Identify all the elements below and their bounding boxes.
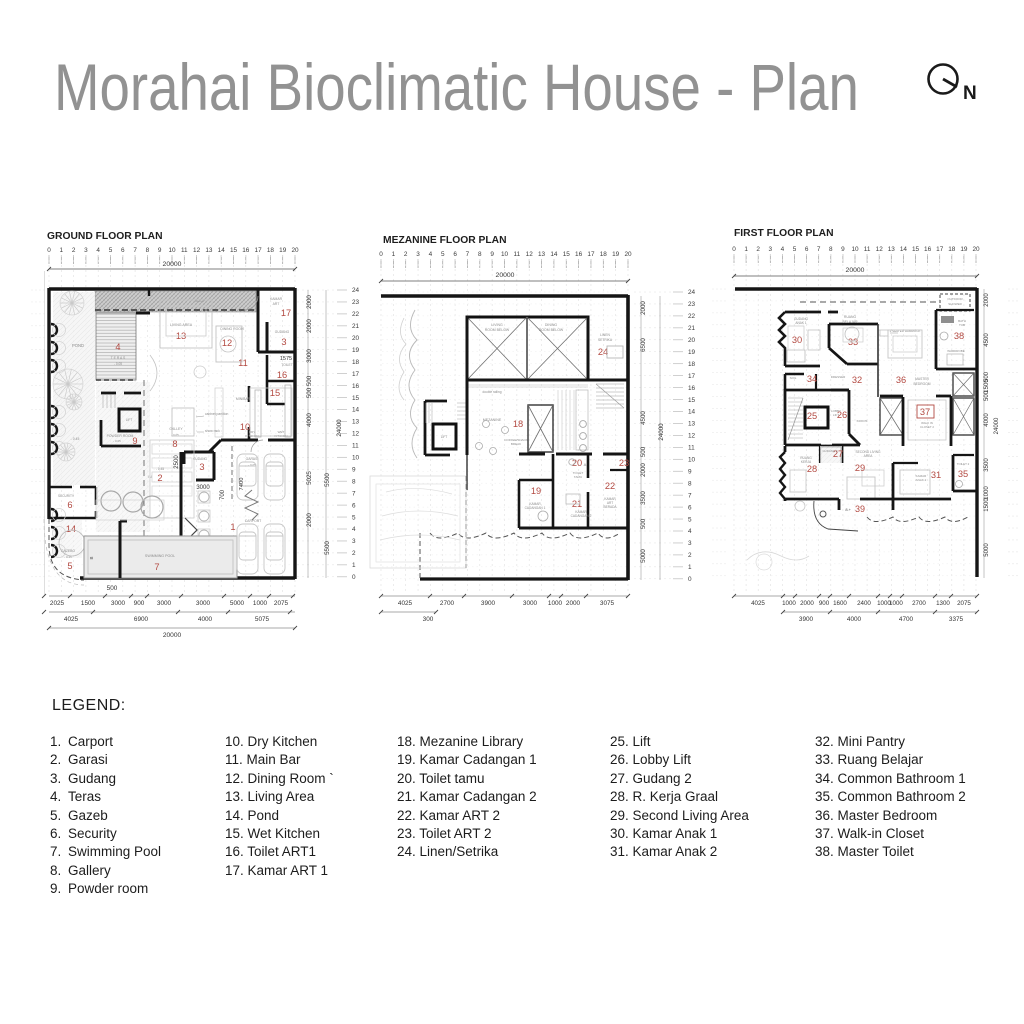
svg-text:1000: 1000 [889,600,903,607]
svg-text:2700: 2700 [912,600,926,607]
svg-text:24000: 24000 [994,417,1000,434]
svg-text:SWIMMING POOL: SWIMMING POOL [145,554,175,558]
svg-text:19: 19 [279,247,287,254]
svg-text:OUTDOOR: OUTDOOR [947,297,963,301]
svg-text:2400: 2400 [857,600,871,607]
svg-text:1500: 1500 [81,600,96,607]
svg-text:10: 10 [352,455,360,462]
svg-text:13: 13 [205,247,213,254]
svg-text:24000: 24000 [336,419,343,437]
svg-text:0: 0 [47,247,51,254]
svg-text:12: 12 [222,338,232,348]
svg-text:10: 10 [168,247,176,254]
svg-text:3075: 3075 [600,600,615,607]
svg-text:3: 3 [688,540,692,547]
svg-text:LIVING: LIVING [491,323,503,327]
svg-text:4000: 4000 [984,413,990,427]
svg-text:9: 9 [490,251,494,258]
svg-text:700: 700 [220,489,226,500]
svg-text:13: 13 [888,246,896,253]
svg-text:GUDANG 2: GUDANG 2 [822,449,837,453]
svg-text:34: 34 [807,374,817,384]
svg-text:POWDER ROOM: POWDER ROOM [107,434,134,438]
svg-text:BELAJAR: BELAJAR [842,320,858,324]
svg-text:- 0.45: - 0.45 [71,437,80,441]
svg-text:TUB: TUB [959,323,965,327]
svg-text:12: 12 [688,433,696,440]
svg-text:12: 12 [876,246,884,253]
svg-text:3900: 3900 [799,616,814,623]
svg-text:7: 7 [817,246,821,253]
svg-text:30: 30 [792,335,802,345]
svg-text:1: 1 [230,522,235,532]
svg-text:37: 37 [920,407,930,417]
svg-text:10: 10 [501,251,509,258]
svg-text:21: 21 [688,325,696,332]
svg-text:10: 10 [688,457,696,464]
svg-text:3000: 3000 [523,600,538,607]
svg-text:14: 14 [688,409,696,416]
svg-text:GUDANG: GUDANG [193,457,208,461]
svg-text:6900: 6900 [134,616,149,623]
svg-text:2700: 2700 [440,600,455,607]
svg-text:GALLEY: GALLEY [169,427,183,431]
svg-text:20000: 20000 [496,272,515,279]
svg-text:22: 22 [688,313,696,320]
svg-text:3: 3 [769,246,773,253]
svg-text:23: 23 [619,458,629,468]
svg-text:4: 4 [688,528,692,535]
svg-text:16: 16 [924,246,932,253]
svg-text:1500: 1500 [984,379,990,393]
svg-text:11: 11 [181,247,188,254]
svg-text:20000: 20000 [163,261,182,268]
svg-text:13: 13 [538,251,546,258]
svg-text:10: 10 [240,422,250,432]
svg-text:3: 3 [281,337,286,347]
svg-text:MEZANINE: MEZANINE [483,418,502,422]
svg-text:1500: 1500 [984,498,990,512]
svg-text:SECURITY: SECURITY [58,494,75,498]
svg-text:18: 18 [513,419,523,429]
svg-text:2: 2 [157,473,162,483]
svg-text:28: 28 [807,464,817,474]
svg-text:39: 39 [855,504,865,514]
svg-text:4025: 4025 [398,600,413,607]
svg-text:KAMAR: KAMAR [270,297,283,301]
svg-text:4500: 4500 [984,333,990,347]
svg-text:11: 11 [688,445,695,452]
svg-text:POND: POND [72,343,84,348]
svg-text:- 0.45: - 0.45 [156,467,164,471]
svg-text:2000: 2000 [984,293,990,307]
svg-text:4: 4 [781,246,785,253]
svg-text:4000: 4000 [306,413,313,427]
svg-text:DINING: DINING [545,323,558,327]
svg-text:12: 12 [193,247,201,254]
svg-text:15: 15 [912,246,920,253]
svg-text:8: 8 [146,247,150,254]
svg-text:15: 15 [563,251,571,258]
svg-text:22: 22 [352,311,360,318]
svg-text:15: 15 [230,247,238,254]
svg-text:TOILET: TOILET [281,363,292,367]
svg-text:17: 17 [688,373,696,380]
svg-text:GUDANG: GUDANG [275,330,290,334]
svg-text:BEDROOM: BEDROOM [913,382,930,386]
svg-text:2075: 2075 [274,600,289,607]
svg-text:8: 8 [688,480,692,487]
svg-text:20000: 20000 [846,267,865,274]
svg-text:2: 2 [756,246,760,253]
svg-text:5: 5 [352,514,356,521]
svg-text:3500: 3500 [640,491,647,505]
svg-text:1000: 1000 [782,600,796,607]
svg-text:SHOWER: SHOWER [948,302,962,306]
svg-text:KROOS: KROOS [857,419,868,423]
svg-text:1: 1 [688,564,692,571]
svg-text:7: 7 [133,247,137,254]
svg-text:1: 1 [352,562,356,569]
svg-text:2: 2 [72,247,76,254]
svg-text:GARASI: GARASI [246,457,259,461]
svg-text:4: 4 [115,342,120,352]
svg-text:CADANGAN 2: CADANGAN 2 [571,514,592,518]
svg-text:2000: 2000 [640,463,647,477]
svg-text:17: 17 [587,251,595,258]
svg-text:24: 24 [688,289,696,296]
svg-text:9: 9 [132,436,137,446]
svg-text:300: 300 [423,616,434,623]
svg-text:show rack: show rack [205,429,220,433]
svg-text:6: 6 [805,246,809,253]
svg-text:0: 0 [379,251,383,258]
svg-text:500: 500 [640,446,647,457]
svg-text:20: 20 [352,335,360,342]
svg-text:3: 3 [199,462,204,472]
svg-text:26: 26 [837,410,847,420]
svg-text:900: 900 [134,600,145,607]
svg-text:13: 13 [352,419,360,426]
svg-text:16: 16 [242,247,250,254]
svg-text:19: 19 [612,251,620,258]
svg-text:CLOSET 2: CLOSET 2 [920,425,934,429]
svg-text:0: 0 [688,576,692,583]
svg-text:4700: 4700 [899,616,914,623]
svg-text:2000: 2000 [640,301,647,315]
svg-text:B: B [89,556,94,559]
svg-text:9: 9 [158,247,162,254]
svg-text:8: 8 [478,251,482,258]
svg-text:3: 3 [416,251,420,258]
svg-text:14: 14 [352,407,360,414]
svg-text:MEZANINE FLOOR PLAN: MEZANINE FLOOR PLAN [383,235,507,246]
svg-text:9: 9 [352,466,356,473]
svg-text:DINING ROOM: DINING ROOM [220,327,244,331]
svg-text:ANAK 2: ANAK 2 [916,478,927,482]
svg-text:2000: 2000 [800,600,814,607]
svg-text:36: 36 [896,375,906,385]
svg-text:17: 17 [255,247,263,254]
svg-text:0: 0 [352,574,356,581]
svg-text:TOILET 2: TOILET 2 [957,462,970,466]
svg-text:FIRST FLOOR PLAN: FIRST FLOOR PLAN [734,228,834,239]
svg-text:5000: 5000 [640,549,647,563]
svg-text:3500: 3500 [984,458,990,472]
svg-text:11: 11 [514,251,521,258]
svg-text:500: 500 [306,375,313,386]
svg-text:DRESSER: DRESSER [831,375,846,379]
svg-text:16: 16 [575,251,583,258]
svg-text:3000: 3000 [306,349,313,363]
svg-text:4000: 4000 [198,616,213,623]
svg-text:ART: ART [273,302,280,306]
svg-text:2075: 2075 [957,600,971,607]
svg-text:2000: 2000 [306,295,313,309]
svg-text:900: 900 [819,600,830,607]
svg-text:2025: 2025 [50,600,65,607]
svg-text:500: 500 [107,585,118,592]
svg-text:15: 15 [270,388,280,398]
svg-text:4000: 4000 [847,616,862,623]
svg-text:17: 17 [281,308,291,318]
svg-text:2000: 2000 [566,600,581,607]
svg-text:15: 15 [688,397,696,404]
svg-text:BERADA: BERADA [603,505,617,509]
svg-text:31: 31 [931,470,941,480]
svg-text:9: 9 [841,246,845,253]
svg-text:5: 5 [793,246,797,253]
svg-text:ANAK 1: ANAK 1 [795,321,807,325]
svg-text:18: 18 [267,247,275,254]
svg-text:1: 1 [744,246,748,253]
svg-text:500: 500 [984,390,990,401]
svg-text:5500: 5500 [324,541,331,555]
svg-text:19: 19 [352,347,360,354]
svg-text:15: 15 [352,395,360,402]
svg-text:1: 1 [392,251,396,258]
svg-text:BREAK: BREAK [511,442,521,446]
svg-text:5000: 5000 [230,600,245,607]
svg-text:35: 35 [958,469,968,479]
svg-text:TAMU: TAMU [574,475,582,479]
svg-text:8: 8 [172,439,177,449]
svg-text:3000: 3000 [196,485,210,491]
svg-text:23: 23 [352,299,360,306]
svg-text:3: 3 [84,247,88,254]
svg-text:14: 14 [550,251,558,258]
svg-text:MINIBAR: MINIBAR [236,397,251,401]
svg-text:1300: 1300 [936,600,950,607]
svg-text:10: 10 [851,246,859,253]
svg-text:3000: 3000 [196,600,211,607]
svg-text:20: 20 [624,251,632,258]
svg-text:4500: 4500 [640,411,647,425]
svg-text:18: 18 [600,251,608,258]
svg-text:AREA: AREA [864,454,874,458]
svg-text:18: 18 [688,361,696,368]
svg-text:5: 5 [688,516,692,523]
svg-text:RUANG: RUANG [844,315,857,319]
svg-text:LINEN: LINEN [600,333,610,337]
svg-text:17: 17 [936,246,944,253]
svg-text:3375: 3375 [949,616,964,623]
svg-text:6: 6 [121,247,125,254]
svg-text:22: 22 [605,481,615,491]
svg-text:24000: 24000 [658,423,665,441]
svg-text:11: 11 [238,358,248,368]
svg-text:5: 5 [109,247,113,254]
svg-text:14: 14 [218,247,226,254]
svg-text:19: 19 [531,486,541,496]
svg-text:16: 16 [277,370,287,380]
svg-text:7: 7 [154,562,159,572]
svg-text:T E R A S: T E R A S [111,356,126,360]
svg-text:500: 500 [306,387,313,398]
svg-text:5: 5 [67,561,72,571]
svg-text:cabinet partition: cabinet partition [205,412,228,416]
svg-text:4: 4 [429,251,433,258]
svg-text:- 0.05: - 0.05 [113,439,121,443]
svg-text:12: 12 [352,431,360,438]
svg-text:2: 2 [688,552,692,559]
svg-text:19: 19 [960,246,968,253]
svg-text:double railing: double railing [483,390,502,394]
svg-text:0: 0 [732,246,736,253]
svg-text:16: 16 [352,383,360,390]
svg-text:16: 16 [688,385,696,392]
svg-text:WARDROBE: WARDROBE [947,349,965,353]
svg-text:3900: 3900 [481,600,496,607]
svg-text:4025: 4025 [64,616,79,623]
svg-text:8.+: 8.+ [845,507,851,512]
svg-text:ROOM BELOW: ROOM BELOW [485,328,510,332]
svg-text:GROUND FLOOR PLAN: GROUND FLOOR PLAN [47,231,163,242]
svg-text:8: 8 [352,478,356,485]
svg-text:11: 11 [864,246,871,253]
svg-text:SETRIKA: SETRIKA [598,338,613,342]
svg-text:500: 500 [640,518,647,529]
svg-text:3000: 3000 [157,600,172,607]
svg-text:18: 18 [948,246,956,253]
svg-text:5000: 5000 [984,543,990,557]
svg-text:7: 7 [352,490,356,497]
svg-text:8: 8 [829,246,833,253]
svg-text:4: 4 [352,526,356,533]
svg-text:20000: 20000 [163,632,182,639]
svg-text:17: 17 [352,371,360,378]
svg-text:5025: 5025 [306,471,313,485]
svg-text:29: 29 [855,463,865,473]
svg-text:6: 6 [352,502,356,509]
svg-text:4025: 4025 [751,600,765,607]
svg-text:1600: 1600 [833,600,847,607]
svg-text:2500: 2500 [174,455,180,469]
svg-text:20: 20 [972,246,980,253]
svg-text:1000: 1000 [253,600,268,607]
svg-text:21: 21 [352,323,360,330]
svg-text:6: 6 [688,504,692,511]
svg-text:2000: 2000 [306,319,313,333]
svg-text:5500: 5500 [324,473,331,487]
svg-text:5: 5 [441,251,445,258]
svg-text:7: 7 [688,492,692,499]
svg-text:LIFT: LIFT [441,435,448,439]
svg-text:6: 6 [67,500,72,510]
svg-text:2000: 2000 [306,513,313,527]
svg-text:1000: 1000 [548,600,563,607]
svg-text:24: 24 [352,287,360,294]
svg-text:1: 1 [60,247,64,254]
svg-text:3000: 3000 [111,600,126,607]
svg-text:3: 3 [352,538,356,545]
svg-text:1575: 1575 [280,356,292,362]
svg-text:6500: 6500 [640,338,647,352]
svg-text:CADANGAN 1: CADANGAN 1 [525,506,546,510]
svg-text:7: 7 [466,251,470,258]
svg-text:LIVING AREA: LIVING AREA [170,323,193,327]
svg-text:5075: 5075 [255,616,270,623]
svg-text:2: 2 [404,251,408,258]
svg-text:20: 20 [688,337,696,344]
svg-text:LIFT: LIFT [126,418,133,422]
svg-text:ROOM BELOW: ROOM BELOW [539,328,564,332]
svg-text:14: 14 [66,524,76,534]
svg-text:MASTER: MASTER [915,377,929,381]
svg-text:9: 9 [688,468,692,475]
svg-text:12: 12 [526,251,534,258]
svg-text:19: 19 [688,349,696,356]
svg-text:32: 32 [852,375,862,385]
svg-text:4: 4 [96,247,100,254]
svg-text:1000: 1000 [984,486,990,500]
svg-text:2: 2 [352,550,356,557]
svg-text:25: 25 [807,411,817,421]
svg-text:11: 11 [352,443,359,450]
svg-text:18: 18 [352,359,360,366]
svg-text:6: 6 [453,251,457,258]
svg-text:- 0.05: - 0.05 [114,362,122,366]
svg-text:7400: 7400 [239,478,245,491]
svg-text:A: A [584,462,587,467]
svg-text:13: 13 [688,421,696,428]
svg-text:SOIL: SOIL [790,376,797,380]
svg-text:38: 38 [954,331,964,341]
svg-text:20: 20 [291,247,299,254]
svg-text:23: 23 [688,301,696,308]
svg-text:14: 14 [900,246,908,253]
